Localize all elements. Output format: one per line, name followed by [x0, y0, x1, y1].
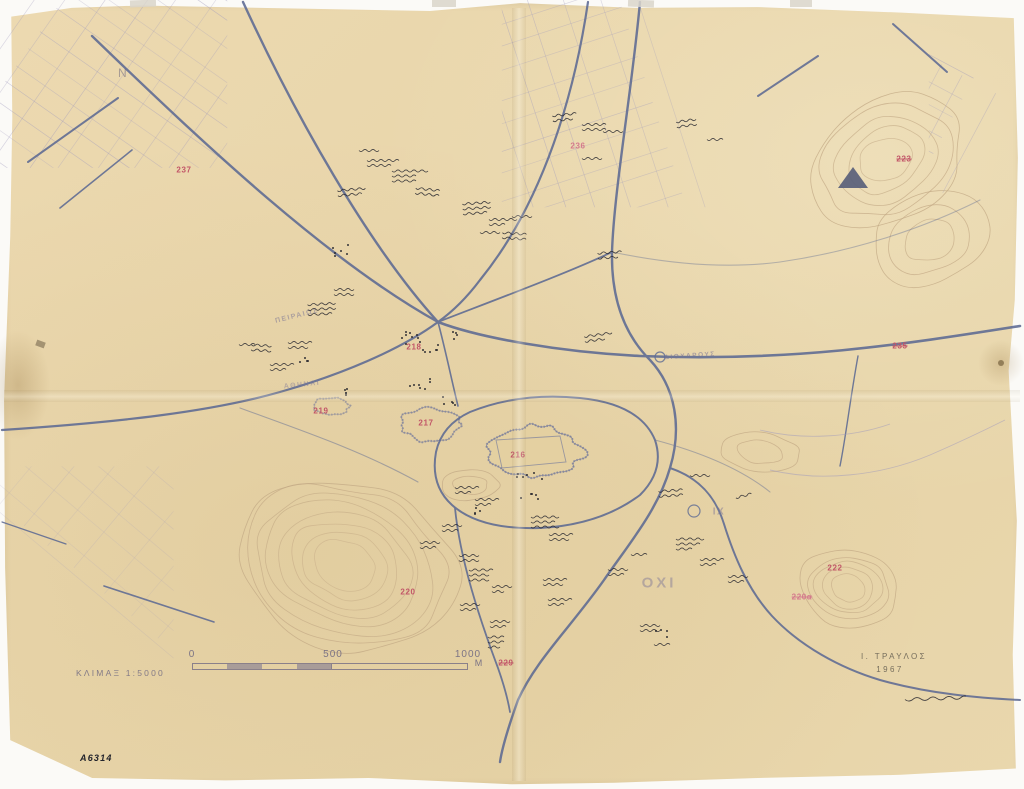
street-grid-line	[23, 560, 305, 674]
street-grid-line	[0, 0, 210, 263]
scribble-stroke	[460, 603, 480, 605]
ink-annotation-scribble	[336, 186, 367, 207]
street-grid-zone	[325, 445, 698, 789]
street-grid-line	[663, 0, 1012, 184]
street-grid-line	[650, 0, 999, 163]
scribble-stroke	[334, 288, 354, 290]
street-grid-line	[851, 305, 1024, 756]
street-grid-line	[400, 196, 691, 221]
street-grid-line	[256, 122, 659, 253]
street-grid-line	[0, 383, 226, 605]
street-grid-line	[931, 0, 1024, 262]
street-grid-line	[0, 191, 162, 455]
street-grid-line	[434, 275, 885, 515]
scribble-stroke	[728, 575, 748, 577]
street-grid-line	[600, 0, 803, 372]
scribble-stroke	[549, 538, 569, 540]
street-grid-line	[116, 0, 467, 169]
park-path	[770, 420, 1005, 476]
street-grid-line	[155, 0, 506, 113]
excavation-dot	[530, 493, 532, 495]
street-grid-line	[833, 0, 1024, 323]
map-circle-symbol	[688, 505, 700, 517]
ink-annotation-scribble	[706, 132, 726, 150]
street-grid-line	[560, 0, 941, 138]
street-grid-line	[742, 363, 982, 789]
ink-annotation-scribble	[479, 225, 501, 243]
handwritten-ink-note	[904, 690, 967, 710]
road-northeast-curve	[438, 2, 588, 322]
street-grid-line	[131, 352, 353, 616]
ink-annotation-scribble	[699, 557, 725, 575]
acropolis-rock	[486, 424, 587, 478]
scribble-stroke	[531, 516, 559, 518]
contour-line	[808, 558, 889, 619]
street-grid-line	[185, 397, 407, 661]
scribble-stroke	[531, 521, 555, 523]
ink-annotation-scribble	[657, 487, 686, 507]
scribble-stroke	[676, 118, 696, 123]
ink-annotation-scribble	[675, 116, 701, 137]
street-grid-line	[40, 32, 391, 278]
street-grid-line	[635, 293, 1024, 469]
scribble-stroke	[707, 138, 723, 140]
street-grid-line	[80, 702, 362, 789]
scribble-stroke	[334, 293, 354, 295]
street-grid-line	[620, 0, 969, 115]
tape-mark	[432, 0, 456, 7]
street-grid-line	[780, 153, 1024, 371]
cartographer-credit: Ι. ΤΡΑΥΛΟΣ	[861, 652, 927, 661]
philopappos-contours	[239, 483, 462, 653]
site-number-label: 223	[896, 155, 911, 164]
ink-annotation-scribble	[551, 111, 581, 132]
street-grid-line	[447, 149, 828, 352]
street-grid-line	[107, 0, 458, 182]
rock-outcrops-layer	[314, 398, 588, 478]
street-grid-line	[664, 707, 1024, 789]
street-grid-line	[891, 294, 1024, 730]
ink-annotation-scribble	[419, 540, 441, 558]
street-grid-line	[0, 0, 228, 276]
lycabettus-contours	[811, 91, 960, 227]
scale-bar	[192, 663, 468, 670]
scribble-stroke	[502, 237, 526, 241]
ink-annotation-scribble	[413, 186, 443, 207]
street-grid-line	[16, 544, 298, 658]
street-grid-zone	[0, 167, 408, 662]
scribble-stroke	[307, 302, 335, 306]
street-grid-line	[192, 445, 306, 727]
contour-line	[314, 539, 375, 591]
street-grid-line	[633, 194, 658, 485]
scribble-stroke	[659, 489, 683, 493]
street-grid-line	[705, 34, 1024, 252]
street-grid-line	[0, 524, 110, 789]
street-grid-line	[393, 277, 684, 302]
scribble-stroke	[490, 620, 510, 622]
street-grid-line	[0, 546, 56, 789]
street-grid-line	[0, 226, 255, 472]
excavation-dot	[443, 403, 445, 405]
road-northwest-corner-street-2	[60, 150, 132, 208]
road-right-mid-connector	[840, 356, 858, 466]
contour-line	[800, 550, 896, 628]
scribble-stroke	[475, 503, 491, 505]
ink-annotation-scribble	[602, 124, 624, 142]
street-grid-line	[758, 117, 1024, 335]
street-grid-line	[486, 372, 937, 612]
ink-annotation-scribble	[727, 574, 751, 592]
street-grid-line	[971, 0, 1024, 237]
scribble-stroke	[442, 524, 462, 526]
street-grid-line	[230, 98, 476, 449]
street-grid-line	[54, 501, 168, 783]
street-grid-line	[384, 378, 675, 403]
street-grid-line	[0, 440, 178, 662]
street-grid-line	[624, 319, 1024, 495]
contour-line	[737, 440, 782, 464]
street-grid-line	[601, 589, 1024, 789]
scribble-stroke	[308, 312, 332, 315]
ink-annotation-scribble	[269, 362, 297, 380]
scribble-stroke	[392, 175, 416, 177]
scale-bar-segment	[262, 664, 297, 669]
ink-annotation-scribble	[459, 602, 481, 620]
ink-annotation-scribble	[653, 637, 673, 655]
scribble-stroke	[659, 494, 683, 498]
street-grid-line	[31, 580, 313, 694]
main-roads-layer	[2, 2, 1020, 762]
summit-triangle-icon	[838, 167, 868, 188]
street-grid-line	[300, 257, 703, 388]
street-grid-line	[955, 0, 1024, 247]
street-grid-line	[24, 262, 246, 526]
street-grid-line	[74, 686, 356, 789]
road-east-avenue	[438, 322, 1020, 357]
street-grid-line	[672, 723, 1024, 789]
scribble-stroke	[553, 118, 573, 122]
street-grid-line	[790, 170, 1024, 388]
scribble-stroke	[416, 187, 440, 192]
street-grid-line	[914, 303, 1024, 739]
street-grid-line	[683, 35, 886, 416]
street-grid-line	[597, 387, 1024, 563]
road-hub-to-stadiou	[438, 252, 612, 322]
scribble-stroke	[469, 574, 489, 576]
excavation-dot	[411, 336, 413, 338]
scribble-stroke	[338, 193, 362, 197]
street-grid-line	[724, 64, 1024, 282]
scribble-stroke	[367, 164, 391, 166]
excavation-dot	[429, 351, 431, 353]
excavation-dot	[451, 401, 453, 403]
road-northeast-corner-street-2	[893, 24, 947, 72]
scale-caption: ΚΛΙΜΑΞ 1:5000	[76, 668, 165, 678]
scribble-stroke	[469, 569, 493, 571]
scale-tick-500: 500	[323, 649, 343, 660]
excavation-dot	[424, 388, 426, 390]
road-west-avenue	[2, 322, 438, 430]
ink-annotation-scribble	[487, 635, 507, 658]
scribble-stroke	[392, 170, 428, 172]
excavation-dot	[306, 360, 308, 362]
street-grid-line	[143, 0, 494, 131]
scribble-stroke	[463, 211, 487, 215]
street-grid-line	[0, 341, 261, 563]
street-grid-line	[685, 746, 1024, 789]
street-grid-line	[591, 569, 1024, 789]
excavation-dot	[346, 253, 348, 255]
street-grid-line	[375, 478, 666, 503]
lycabettus-ridge-contours	[876, 191, 990, 288]
street-grid-line	[608, 360, 1024, 536]
scribble-stroke	[676, 548, 692, 550]
site-number-label: 235	[892, 342, 907, 351]
contour-line	[905, 219, 954, 260]
street-grid-line	[46, 283, 310, 505]
street-grid-line	[652, 685, 1024, 789]
scribble-stroke	[598, 256, 618, 259]
scale-bar-segment	[193, 664, 227, 669]
tape-mark	[628, 0, 654, 7]
scribble-stroke	[549, 533, 573, 535]
scale-bar-segment	[297, 664, 331, 669]
scribble-stroke	[676, 543, 700, 545]
scribble-stroke	[488, 636, 504, 638]
street-grid-line	[581, 0, 784, 362]
street-grid-line	[0, 157, 303, 403]
street-grid-line	[0, 117, 332, 363]
contour-line	[819, 103, 953, 215]
road-north-diagonal	[243, 2, 438, 322]
scribble-stroke	[239, 343, 255, 345]
ink-annotation-scribble	[581, 151, 603, 169]
credit-year: 1967	[876, 665, 903, 674]
excavation-dot	[453, 338, 455, 340]
scribble-stroke	[463, 206, 491, 210]
street-grid-line	[677, 187, 1024, 363]
road-northwest-corner-street	[28, 98, 118, 162]
street-grid-line	[653, 86, 871, 435]
scribble-stroke	[460, 608, 476, 610]
street-grid-line	[610, 0, 959, 100]
scribble-stroke	[420, 541, 440, 543]
scribble-stroke	[548, 598, 572, 600]
street-grid-line	[556, 462, 796, 789]
contour-line	[257, 493, 433, 637]
street-grid-line	[759, 75, 962, 456]
street-grid-line	[199, 24, 330, 427]
scribble-stroke	[677, 123, 697, 128]
street-grid-line	[872, 294, 1024, 745]
street-grid-line	[212, 0, 615, 119]
scribble-stroke	[459, 559, 479, 561]
street-grid-line	[685, 199, 710, 490]
street-grid-line	[78, 0, 429, 224]
street-grid-line	[0, 441, 257, 555]
archive-number: Α6314	[80, 753, 113, 763]
street-grid-line	[739, 64, 942, 445]
tape-mark	[130, 0, 156, 7]
scribble-stroke	[308, 307, 336, 311]
scribble-stroke	[475, 498, 499, 500]
ink-annotation-scribble	[287, 340, 313, 358]
street-grid-line	[500, 49, 881, 252]
street-grid-line	[491, 66, 872, 269]
ink-annotation-scribble	[547, 597, 573, 615]
street-grid-line	[112, 478, 226, 760]
street-grid-line	[716, 51, 1024, 269]
scribble-stroke	[598, 251, 622, 255]
scribble-stroke	[608, 568, 628, 570]
site-number-label: 217	[418, 419, 433, 428]
street-grid-line	[524, 0, 727, 332]
contour-line	[292, 524, 397, 610]
site-number-label: 229	[498, 659, 513, 668]
contour-line	[889, 205, 970, 275]
street-grid-line	[627, 102, 845, 451]
excavation-dot	[541, 478, 543, 480]
street-grid-line	[48, 623, 330, 737]
street-grid-line	[182, 0, 585, 26]
street-grid-line	[570, 454, 1006, 630]
street-grid-line	[676, 72, 894, 421]
contour-line	[721, 432, 799, 472]
street-grid-zone	[369, 0, 996, 475]
street-grid-line	[401, 180, 692, 205]
scribble-stroke	[654, 643, 670, 645]
excavation-dot	[332, 247, 334, 249]
street-grid-line	[822, 266, 998, 702]
scribble-stroke	[676, 538, 704, 540]
street-grid-line	[630, 643, 1024, 789]
street-grid-line	[0, 213, 188, 477]
excavation-dot	[344, 389, 346, 391]
street-grid-line	[810, 202, 1024, 420]
excavation-dot	[401, 337, 403, 339]
excavation-dot	[299, 361, 301, 363]
scribble-stroke	[502, 232, 526, 236]
street-grid-line	[536, 538, 972, 714]
excavation-dot	[340, 250, 342, 252]
street-grid-line	[158, 374, 380, 638]
scribble-stroke	[700, 563, 716, 565]
faint-street-label: ΟΧΙ	[642, 575, 677, 592]
scribble-stroke	[488, 641, 504, 643]
scribble-stroke	[420, 546, 436, 548]
street-grid-line	[82, 490, 196, 772]
zappeion-park-contours	[721, 432, 799, 472]
street-grid-zone	[0, 0, 520, 480]
scribble-stroke	[736, 493, 752, 499]
street-grid-line	[188, 0, 591, 46]
park-paths-layer	[760, 420, 1005, 476]
street-grid-line	[84, 0, 330, 347]
ink-annotation-scribble	[689, 468, 711, 486]
contour-line	[831, 574, 865, 603]
street-grid-line	[360, 170, 385, 461]
street-grid-line	[642, 666, 1024, 789]
street-grid-line	[769, 245, 945, 681]
street-grid-line	[0, 241, 221, 505]
site-number-label: 220	[400, 588, 415, 597]
street-grid-line	[587, 446, 827, 789]
street-grid-line	[844, 255, 1024, 473]
scribble-stroke	[359, 149, 379, 151]
faint-street-label: ΙΧ	[713, 507, 725, 518]
scribble-stroke	[582, 157, 602, 159]
street-grid-line	[334, 735, 628, 789]
street-grid-line	[583, 170, 759, 606]
street-grid-line	[342, 697, 636, 760]
scribble-stroke	[512, 215, 532, 217]
scribble-stroke	[459, 554, 479, 556]
street-grid-line	[0, 0, 154, 224]
street-grid-zone	[0, 412, 388, 789]
ardittos-contours	[800, 550, 896, 628]
street-grid-line	[346, 678, 640, 741]
street-grid-line	[0, 424, 191, 646]
street-grid-line	[398, 215, 689, 240]
scribble-stroke	[728, 580, 744, 582]
street-grid-line	[852, 278, 1024, 714]
street-grid-line	[946, 316, 1024, 752]
site-number-label: 220α	[792, 593, 813, 602]
street-grid-line	[0, 188, 282, 434]
street-grid-line	[0, 98, 345, 344]
street-grid-line	[769, 136, 1024, 354]
street-grid-line	[656, 20, 859, 401]
excavation-dot	[666, 630, 668, 632]
street-grid-line	[164, 456, 278, 738]
street-grid-line	[0, 0, 134, 210]
street-grid-line	[0, 207, 269, 453]
scribble-stroke	[488, 646, 500, 648]
street-grid-line	[694, 16, 1024, 234]
street-grid-line	[909, 0, 1024, 276]
street-grid-line	[671, 202, 1024, 378]
excavation-dot	[437, 344, 439, 346]
scribble-stroke	[462, 201, 490, 205]
excavation-dot	[409, 332, 411, 334]
excavation-dot	[419, 387, 421, 389]
scale-bar-segment	[227, 664, 262, 669]
site-number-label: 216	[510, 451, 525, 460]
street-grid-line	[544, 518, 980, 694]
excavation-dot	[436, 349, 438, 351]
street-grid-line	[394, 259, 685, 284]
street-grid-line	[748, 101, 1024, 319]
excavation-dot	[334, 255, 336, 257]
ink-annotation-scribble	[511, 209, 535, 227]
scribble-stroke	[288, 346, 308, 348]
site-number-label: 218	[406, 343, 421, 352]
scribble-stroke	[492, 590, 504, 592]
ink-annotation-scribble	[542, 577, 570, 595]
scribble-stroke	[640, 629, 660, 631]
scribble-stroke	[442, 529, 458, 531]
scale-tick-0: 0	[189, 649, 196, 660]
street-grid-line	[767, 350, 1007, 789]
street-grid-line	[34, 0, 280, 312]
scribble-stroke	[490, 625, 506, 627]
scribble-stroke	[455, 486, 479, 488]
street-grid-line	[661, 406, 901, 789]
contour-line	[279, 512, 413, 619]
site-number-label: 222	[827, 564, 842, 573]
scribble-stroke	[603, 130, 623, 132]
